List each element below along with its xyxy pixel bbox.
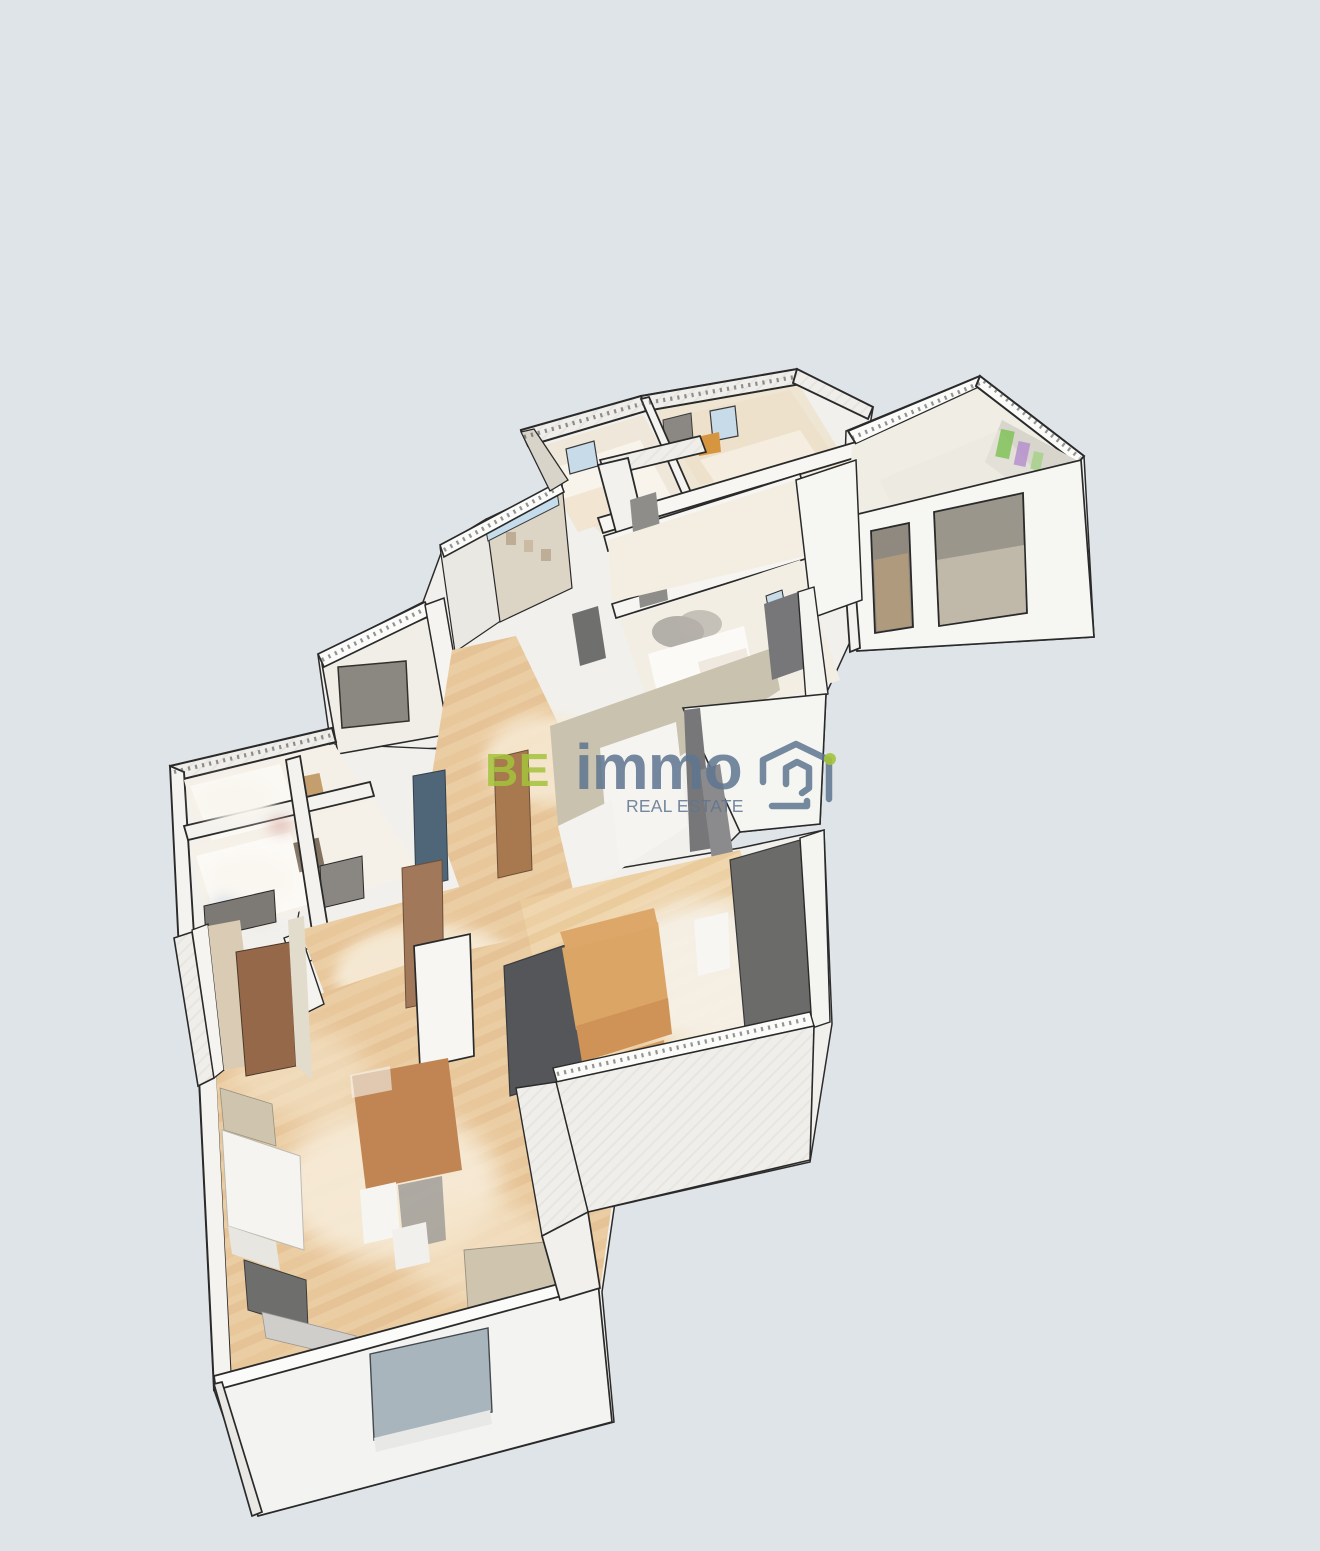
svg-text:BE: BE (485, 744, 550, 796)
svg-text:immo: immo (575, 731, 742, 803)
svg-text:REAL ESTATE: REAL ESTATE (626, 796, 744, 816)
